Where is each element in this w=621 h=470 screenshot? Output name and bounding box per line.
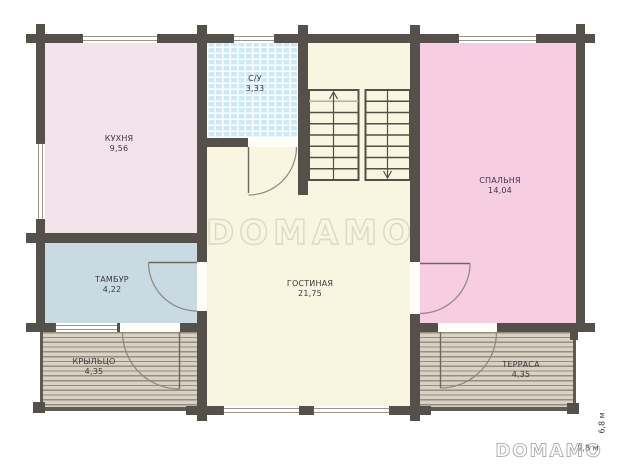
room-area: 21,75 [287, 289, 333, 299]
room-area: 4,35 [73, 367, 116, 377]
room-name: ГОСТИНАЯ [287, 279, 333, 289]
label-vestibule: ТАМБУР 4,22 [95, 275, 129, 294]
room-name: ТАМБУР [95, 275, 129, 285]
label-bedroom: СПАЛЬНЯ 14,04 [479, 176, 521, 195]
label-bathroom: С/У 3,33 [246, 74, 265, 93]
room-area: 4,22 [95, 285, 129, 295]
logo-domamo: DOMAMO [495, 441, 602, 462]
doors [123, 147, 497, 389]
staircase [309, 90, 410, 180]
door-arc-bedroom [420, 264, 470, 314]
room-name: С/У [246, 74, 265, 84]
label-living: ГОСТИНАЯ 21,75 [287, 279, 333, 298]
room-area: 9,56 [105, 144, 134, 154]
dimension-height: 6,8 м [598, 412, 607, 433]
label-porch: КРЫЛЬЦО 4,35 [73, 357, 116, 376]
plan-linework [0, 0, 621, 470]
door-arc-terrace [441, 332, 497, 388]
room-name: КРЫЛЬЦО [73, 357, 116, 367]
room-area: 14,04 [479, 186, 521, 196]
floor-plan: DOMAMO [0, 0, 621, 470]
room-area: 3,33 [246, 84, 265, 94]
label-kitchen: КУХНЯ 9,56 [105, 134, 134, 153]
room-name: КУХНЯ [105, 134, 134, 144]
label-terrace: ТЕРРАСА 4,35 [502, 360, 540, 379]
room-name: ТЕРРАСА [502, 360, 540, 370]
door-arc-bathroom [249, 147, 297, 195]
door-arc-entry [123, 332, 180, 389]
room-area: 4,35 [502, 370, 540, 380]
room-name: СПАЛЬНЯ [479, 176, 521, 186]
door-arc-vestibule [149, 263, 198, 312]
